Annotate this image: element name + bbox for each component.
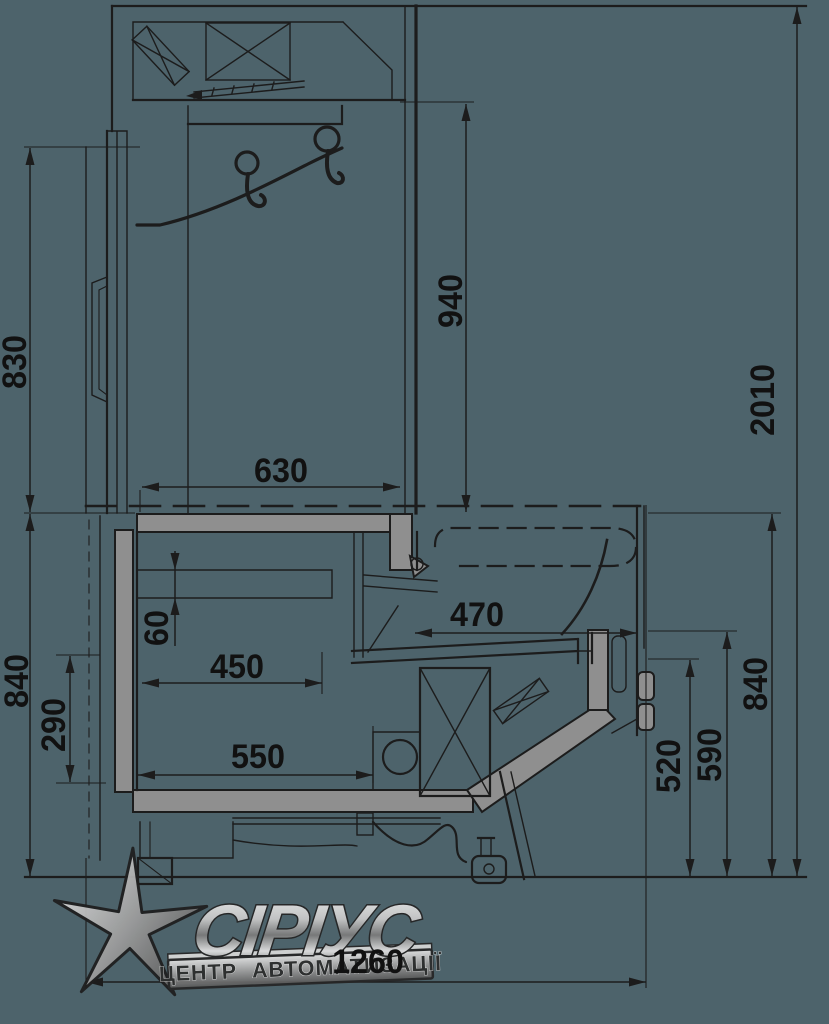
technical-drawing-canvas: ЦЕНТР АВТОМАТИЗАЦІЇ СІРІУС 8309402010630… [0, 0, 829, 1024]
counter-top-panel [137, 514, 412, 532]
dimension-label-840: 840 [737, 657, 775, 711]
dimension-label-290: 290 [35, 698, 73, 752]
dimension-label-1260: 1260 [332, 943, 404, 981]
dimension-label-590: 590 [691, 728, 729, 782]
rear-lower-panel [115, 530, 133, 792]
display-case-section-drawing: ЦЕНТР АВТОМАТИЗАЦІЇ СІРІУС 8309402010630… [0, 0, 829, 1024]
dimension-label-840: 840 [0, 654, 36, 708]
dimension-label-550: 550 [231, 738, 285, 776]
dimension-label-830: 830 [0, 335, 34, 389]
dimension-label-520: 520 [650, 739, 688, 793]
dimension-label-470: 470 [450, 596, 504, 634]
dimension-label-940: 940 [432, 274, 470, 328]
dimension-label-2010: 2010 [744, 364, 782, 436]
dimension-label-60: 60 [138, 610, 176, 646]
counter-corner-panel [390, 514, 412, 570]
dimension-label-630: 630 [254, 452, 308, 490]
dimension-label-450: 450 [210, 648, 264, 686]
